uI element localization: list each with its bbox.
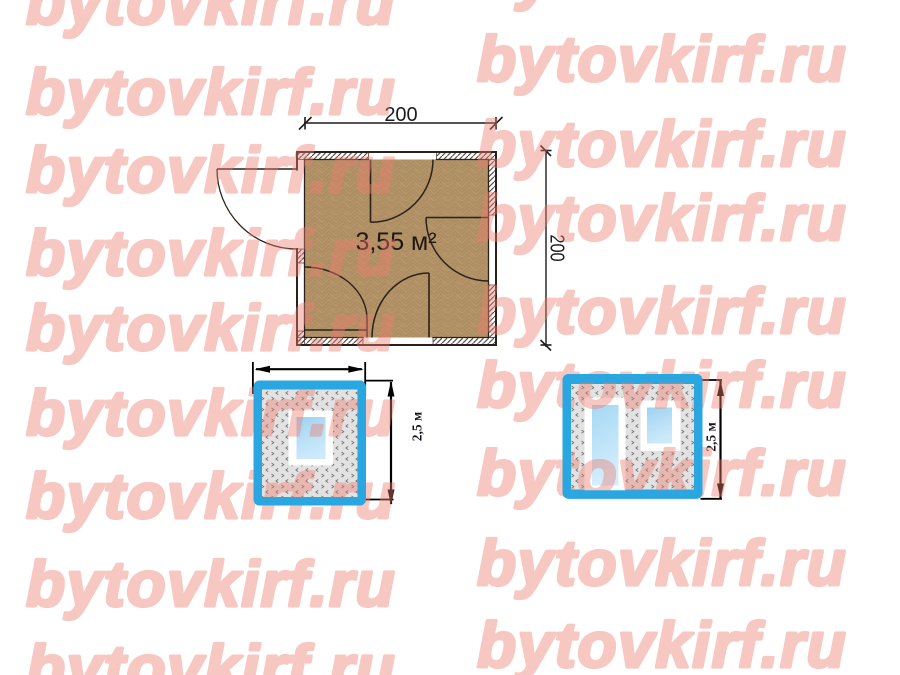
svg-text:bytovkirf.ru: bytovkirf.ru — [477, 182, 847, 254]
svg-text:bytovkirf.ru: bytovkirf.ru — [26, 134, 396, 206]
svg-text:bytovkirf.ru: bytovkirf.ru — [477, 0, 847, 11]
svg-text:bytovkirf.ru: bytovkirf.ru — [26, 548, 396, 620]
svg-text:bytovkirf.ru: bytovkirf.ru — [26, 460, 396, 532]
svg-text:bytovkirf.ru: bytovkirf.ru — [477, 527, 847, 599]
svg-text:bytovkirf.ru: bytovkirf.ru — [26, 292, 396, 364]
svg-text:bytovkirf.ru: bytovkirf.ru — [26, 0, 396, 38]
svg-text:bytovkirf.ru: bytovkirf.ru — [477, 108, 847, 180]
svg-text:bytovkirf.ru: bytovkirf.ru — [477, 275, 847, 347]
svg-text:bytovkirf.ru: bytovkirf.ru — [26, 217, 396, 289]
svg-text:bytovkirf.ru: bytovkirf.ru — [477, 349, 847, 421]
svg-text:bytovkirf.ru: bytovkirf.ru — [477, 23, 847, 95]
svg-text:2,5 м: 2,5 м — [410, 412, 425, 441]
svg-text:bytovkirf.ru: bytovkirf.ru — [26, 632, 396, 675]
svg-text:bytovkirf.ru: bytovkirf.ru — [26, 56, 396, 128]
svg-text:bytovkirf.ru: bytovkirf.ru — [477, 609, 847, 675]
